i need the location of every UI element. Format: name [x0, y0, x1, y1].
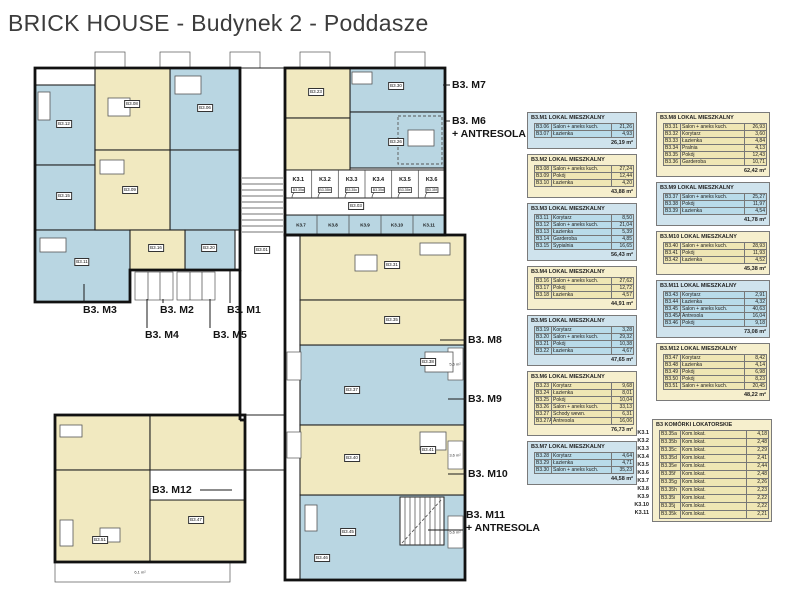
room-code-chip: B3.37	[344, 386, 360, 394]
apartment-table-B3M4: B3.M4 LOKAL MIESZKALNYB3.16Salon + aneks…	[527, 266, 637, 310]
storage-k-label: K3.11	[628, 509, 652, 517]
apartment-table-B3M10: B3.M10 LOKAL MIESZKALNYB3.40Salon + anek…	[656, 231, 770, 275]
apartment-table-title: B3.M11 LOKAL MIESZKALNY	[659, 282, 767, 291]
apartment-table-title: B3.M1 LOKAL MIESZKALNY	[530, 114, 634, 123]
storage-code: B3.35k	[659, 510, 681, 519]
balcony-area-label: 5,6 m²	[449, 530, 460, 535]
unit-label-m1: B3. M1	[227, 304, 261, 317]
room-name: Antresola	[552, 417, 612, 425]
storage-room-code: B3.35c	[345, 187, 359, 193]
room-row: B3.39Łazienka4,54	[663, 207, 767, 215]
room-area: 16,65	[612, 242, 634, 250]
table-total-area: 44,58 m²	[530, 474, 634, 482]
room-code-chip: B3.12	[56, 120, 72, 128]
room-code-chip: B3.09	[122, 186, 138, 194]
storage-room-code: B3.35d	[371, 187, 385, 193]
apartment-table-title: B3.M6 LOKAL MIESZKALNY	[530, 373, 634, 382]
apartment-table-B3M7: B3.M7 LOKAL MIESZKALNYB3.28Korytarz4,64B…	[527, 441, 637, 485]
room-row: B3.18Łazienka4,57	[534, 291, 634, 299]
room-area: 4,54	[745, 207, 767, 215]
unit-label-m6: B3. M6+ ANTRESOLA	[452, 115, 526, 141]
unit-label-m2: B3. M2	[160, 304, 194, 317]
apartment-table-B3M12: B3.M12 LOKAL MIESZKALNYB3.47Korytarz8,42…	[656, 343, 770, 401]
unit-label-m10: B3. M10	[468, 468, 508, 481]
apartment-table-B3M3: B3.M3 LOKAL MIESZKALNYB3.11Korytarz8,50B…	[527, 203, 637, 261]
room-name: Łazienka	[552, 130, 612, 138]
storage-table-title: B3 KOMÓRKI LOKATORSKIE	[655, 421, 769, 430]
apartment-table-title: B3.M12 LOKAL MIESZKALNY	[659, 345, 767, 354]
balcony-area-label: 5,6 m²	[449, 362, 460, 367]
unit-label-line: B3. M9	[468, 393, 502, 406]
apartment-tables-right-column: B3.M8 LOKAL MIESZKALNYB3.31Salon + aneks…	[656, 112, 770, 406]
apartment-table-title: B3.M5 LOKAL MIESZKALNY	[530, 317, 634, 326]
unit-label-line: B3. M1	[227, 304, 261, 317]
room-code: B3.30	[534, 466, 552, 474]
room-code-chip: B3.16	[148, 244, 164, 252]
balcony-area-label: 6,1 m²	[134, 570, 145, 575]
room-code: B3.18	[534, 291, 552, 299]
room-code-chip: B3.51	[92, 536, 108, 544]
table-total-area: 45,38 m²	[659, 264, 767, 272]
room-row: B3.22Łazienka4,67	[534, 347, 634, 355]
apartment-table-title: B3.M8 LOKAL MIESZKALNY	[659, 114, 767, 123]
storage-room-label: K3.8	[328, 223, 338, 228]
apartment-table-B3M2: B3.M2 LOKAL MIESZKALNYB3.08Salon + aneks…	[527, 154, 637, 198]
apartment-table-B3M5: B3.M5 LOKAL MIESZKALNYB3.19Korytarz3,28B…	[527, 315, 637, 366]
unit-label-m11: B3. M11+ ANTRESOLA	[466, 509, 540, 535]
storage-room-label: K3.6	[426, 177, 438, 183]
room-row: B3.30Salon + aneks kuch.35,23	[534, 466, 634, 474]
room-row: B3.36Garderoba10,71	[663, 158, 767, 166]
unit-label-line: B3. M6	[452, 115, 526, 128]
room-row: B3.46Pokój9,18	[663, 319, 767, 327]
table-total-area: 44,91 m²	[530, 299, 634, 307]
unit-label-m8: B3. M8	[468, 334, 502, 347]
room-code-chip: B3.06	[197, 104, 213, 112]
table-total-area: 76,73 m²	[530, 425, 634, 433]
room-row: B3.10Łazienka4,20	[534, 179, 634, 187]
room-area: 4,67	[612, 347, 634, 355]
roof-boxes	[95, 52, 425, 68]
apartment-table-B3M8: B3.M8 LOKAL MIESZKALNYB3.31Salon + aneks…	[656, 112, 770, 177]
table-total-area: 48,22 m²	[659, 390, 767, 398]
apartment-table-B3M6: B3.M6 LOKAL MIESZKALNYB3.23Korytarz9,68B…	[527, 371, 637, 436]
table-total-area: 43,88 m²	[530, 187, 634, 195]
room-code-chip: B3.01	[254, 246, 270, 254]
room-code-chip: B3.45	[340, 528, 356, 536]
room-code-chip: B3.03	[348, 202, 364, 210]
unit-label-line: B3. M2	[160, 304, 194, 317]
storage-k-label: K3.6	[628, 469, 652, 477]
apartment-table-title: B3.M4 LOKAL MIESZKALNY	[530, 268, 634, 277]
room-name: Łazienka	[552, 347, 612, 355]
room-code: B3.36	[663, 158, 681, 166]
storage-room-label: K3.1	[292, 177, 304, 183]
storage-k-label: K3.3	[628, 445, 652, 453]
room-name: Salon + aneks kuch.	[552, 466, 612, 474]
room-name: Łazienka	[552, 291, 612, 299]
apartment-table-title: B3.M7 LOKAL MIESZKALNY	[530, 443, 634, 452]
room-code: B3.42	[663, 256, 681, 264]
unit-label-m5: B3. M5	[213, 329, 247, 342]
storage-room-label: K3.9	[360, 223, 370, 228]
room-row: B3.07Łazienka4,93	[534, 130, 634, 138]
room-row: B3.15Sypialnia16,65	[534, 242, 634, 250]
room-code: B3.51	[663, 382, 681, 390]
apartment-table-title: B3.M10 LOKAL MIESZKALNY	[659, 233, 767, 242]
storage-row: B3.35kKom.lokat.2,21	[659, 510, 769, 519]
storage-room-label: K3.2	[319, 177, 331, 183]
unit-label-m9: B3. M9	[468, 393, 502, 406]
unit-label-line: B3. M11	[466, 509, 540, 522]
room-area: 9,18	[745, 319, 767, 327]
unit-label-line: + ANTRESOLA	[466, 522, 540, 535]
unit-label-line: B3. M8	[468, 334, 502, 347]
room-name: Salon + aneks kuch.	[681, 382, 745, 390]
storage-room-code: B3.35e	[398, 187, 412, 193]
apartment-table-title: B3.M3 LOKAL MIESZKALNY	[530, 205, 634, 214]
apartment-table-B3M9: B3.M9 LOKAL MIESZKALNYB3.37Salon + aneks…	[656, 182, 770, 226]
room-code-chip: B3.08	[124, 100, 140, 108]
storage-k-label: K3.7	[628, 477, 652, 485]
unit-label-line: B3. M4	[145, 329, 179, 342]
unit-label-line: B3. M10	[468, 468, 508, 481]
storage-k-label: K3.5	[628, 461, 652, 469]
table-total-area: 56,43 m²	[530, 250, 634, 258]
room-code-chip: B3.35	[384, 316, 400, 324]
room-code: B3.46	[663, 319, 681, 327]
room-code: B3.07	[534, 130, 552, 138]
room-code-chip: B3.26	[388, 138, 404, 146]
apartment-tables-left-column: B3.M1 LOKAL MIESZKALNYB3.06Salon + aneks…	[527, 112, 637, 490]
room-code-chip: B3.38	[420, 358, 436, 366]
room-code: B3.22	[534, 347, 552, 355]
room-name: Łazienka	[681, 207, 745, 215]
storage-table: K3.1K3.2K3.3K3.4K3.5K3.6K3.7K3.8K3.9K3.1…	[628, 419, 772, 522]
storage-room-label: K3.4	[372, 177, 384, 183]
storage-name: Kom.lokat.	[681, 510, 747, 519]
storage-room-code: B3.35f	[425, 187, 438, 193]
storage-k-label: K3.9	[628, 493, 652, 501]
apartment-table-title: B3.M9 LOKAL MIESZKALNY	[659, 184, 767, 193]
room-code: B3.39	[663, 207, 681, 215]
storage-k-labels: K3.1K3.2K3.3K3.4K3.5K3.6K3.7K3.8K3.9K3.1…	[628, 419, 652, 522]
room-code-chip: B3.40	[344, 454, 360, 462]
storage-room-label: K3.3	[346, 177, 358, 183]
room-name: Łazienka	[681, 256, 745, 264]
unit-label-m4: B3. M4	[145, 329, 179, 342]
unit-label-m7: B3. M7	[452, 79, 486, 92]
apartment-table-B3M11: B3.M11 LOKAL MIESZKALNYB3.43Korytarz2,91…	[656, 280, 770, 338]
room-code: B3.10	[534, 179, 552, 187]
room-code-chip: B3.20	[201, 244, 217, 252]
room-area: 4,93	[612, 130, 634, 138]
room-name: Sypialnia	[552, 242, 612, 250]
storage-k-label: K3.8	[628, 485, 652, 493]
room-code-chip: B3.30	[388, 82, 404, 90]
room-code: B3.15	[534, 242, 552, 250]
table-total-area: 47,65 m²	[530, 355, 634, 363]
room-row: B3.42Łazienka4,52	[663, 256, 767, 264]
unit-label-line: B3. M5	[213, 329, 247, 342]
room-code: B3.27A	[534, 417, 552, 425]
room-row: B3.27AAntresola16,06	[534, 417, 634, 425]
unit-label-line: B3. M7	[452, 79, 486, 92]
room-name: Pokój	[681, 319, 745, 327]
storage-k-label: K3.2	[628, 437, 652, 445]
room-code-chip: B3.31	[384, 261, 400, 269]
room-name: Łazienka	[552, 179, 612, 187]
room-area: 4,20	[612, 179, 634, 187]
storage-k-label: K3.1	[628, 429, 652, 437]
balcony-area-label: 3,6 m²	[449, 453, 460, 458]
room-row: B3.51Salon + aneks kuch.20,45	[663, 382, 767, 390]
apartment-table-B3M1: B3.M1 LOKAL MIESZKALNYB3.06Salon + aneks…	[527, 112, 637, 149]
storage-room-code: B3.35a	[291, 187, 305, 193]
room-code-chip: B3.41	[420, 446, 436, 454]
storage-room-label: K3.5	[399, 177, 411, 183]
storage-room-label: K3.11	[423, 223, 435, 228]
table-total-area: 41,78 m²	[659, 215, 767, 223]
storage-room-code: B3.35b	[318, 187, 332, 193]
room-area: 10,71	[745, 158, 767, 166]
table-total-area: 26,19 m²	[530, 138, 634, 146]
unit-label-line: B3. M12	[152, 484, 192, 497]
room-code-chip: B3.46	[314, 554, 330, 562]
unit-label-m3: B3. M3	[83, 304, 117, 317]
apartment-table-title: B3.M2 LOKAL MIESZKALNY	[530, 156, 634, 165]
room-area: 4,52	[745, 256, 767, 264]
room-code-chip: B3.23	[308, 88, 324, 96]
room-code-chip: B3.15	[56, 192, 72, 200]
unit-label-line: + ANTRESOLA	[452, 128, 526, 141]
floor-plan-page: BRICK HOUSE - Budynek 2 - Poddasze	[0, 0, 794, 600]
storage-table-panel: B3 KOMÓRKI LOKATORSKIE B3.35aKom.lokat.4…	[652, 419, 772, 522]
table-total-area: 62,42 m²	[659, 166, 767, 174]
room-area: 4,57	[612, 291, 634, 299]
storage-room-label: K3.7	[296, 223, 306, 228]
storage-k-label: K3.10	[628, 501, 652, 509]
room-code-chip: B3.47	[188, 516, 204, 524]
table-total-area: 73,08 m²	[659, 327, 767, 335]
room-name: Garderoba	[681, 158, 745, 166]
unit-label-line: B3. M3	[83, 304, 117, 317]
storage-room-label: K3.10	[391, 223, 403, 228]
room-code-chip: B3.11	[74, 258, 89, 266]
storage-k-label: K3.4	[628, 453, 652, 461]
storage-area: 2,21	[747, 510, 769, 519]
unit-label-m12: B3. M12	[152, 484, 192, 497]
room-area: 20,45	[745, 382, 767, 390]
